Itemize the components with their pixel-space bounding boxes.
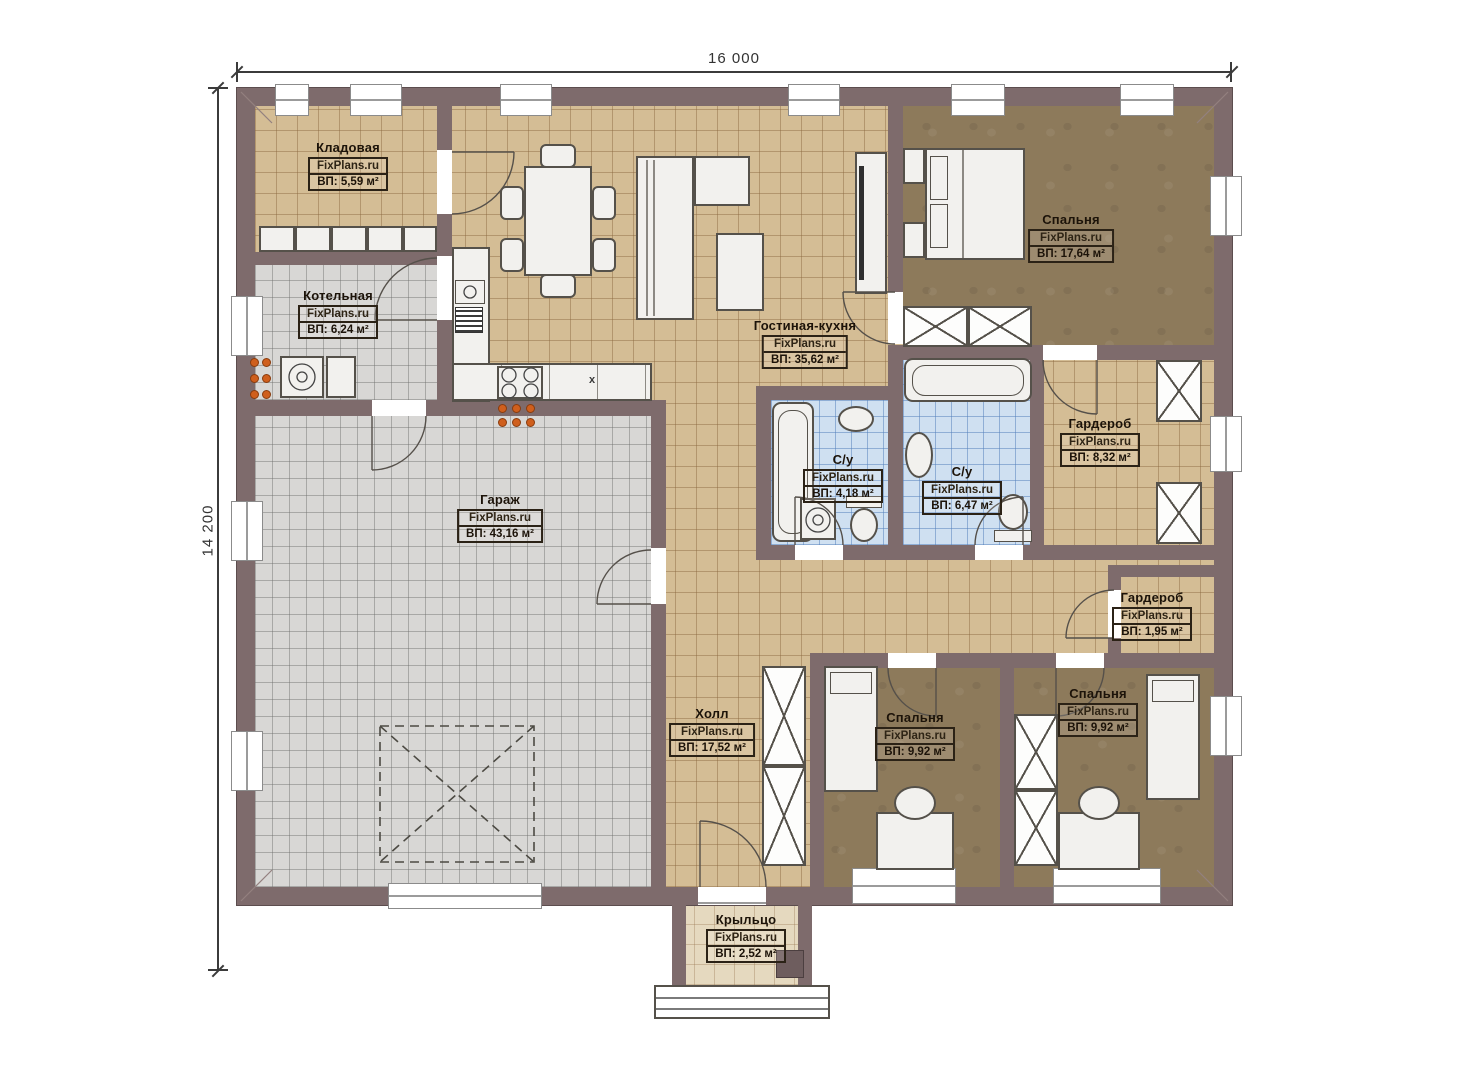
desk <box>876 812 954 870</box>
utility-dot <box>262 390 271 399</box>
window <box>275 84 309 116</box>
utility-dot <box>512 404 521 413</box>
wall <box>437 320 452 400</box>
bathtub-inner <box>912 365 1024 396</box>
room-name: Холл <box>669 706 755 721</box>
sink <box>838 406 874 432</box>
utility-dot <box>512 418 521 427</box>
closet-shelving <box>968 306 1032 347</box>
room-label-bedroom1: Спальня FixPlans.ru ВП: 17,64 м² <box>1028 212 1114 263</box>
storage-shelf <box>403 226 437 252</box>
entry-threshold <box>698 902 766 904</box>
watermark: FixPlans.ru <box>310 159 386 173</box>
window <box>231 731 263 791</box>
room-name: Кладовая <box>308 140 388 155</box>
wall <box>1104 653 1214 668</box>
room-name: Спальня <box>875 710 955 725</box>
dining-chair <box>540 144 576 168</box>
pillow <box>830 672 872 694</box>
room-name: С/у <box>922 464 1002 479</box>
wall <box>437 214 452 256</box>
wall <box>888 359 903 545</box>
room-label-living-kitchen: Гостиная-кухня FixPlans.ru ВП: 35,62 м² <box>754 318 856 369</box>
watermark: FixPlans.ru <box>877 729 953 743</box>
pillow <box>1152 680 1194 702</box>
nightstand <box>903 148 925 184</box>
kitchen-module-sign: x <box>572 365 612 398</box>
utility-dot <box>250 358 259 367</box>
watermark: FixPlans.ru <box>924 483 1000 497</box>
coffee-table <box>716 233 764 311</box>
room-label-hall: Холл FixPlans.ru ВП: 17,52 м² <box>669 706 755 757</box>
room-area: ВП: 5,59 м² <box>310 173 386 189</box>
wardrobe-shelving <box>1014 714 1058 790</box>
watermark: FixPlans.ru <box>300 307 376 321</box>
storage-shelf <box>295 226 331 252</box>
floor-plan: x <box>0 0 1473 1080</box>
wall <box>1108 565 1121 590</box>
sofa-seam <box>653 160 655 316</box>
room-area: ВП: 43,16 м² <box>459 525 541 541</box>
window <box>1120 84 1174 116</box>
kitchen-counter <box>452 363 652 401</box>
wall <box>756 386 771 560</box>
utility-dot <box>498 418 507 427</box>
toilet-bowl <box>998 494 1028 530</box>
window <box>951 84 1005 116</box>
wall <box>936 653 1056 668</box>
room-area: ВП: 6,47 м² <box>924 497 1000 513</box>
kitchen-sink <box>455 280 485 304</box>
room-label-bedroom2: Спальня FixPlans.ru ВП: 9,92 м² <box>875 710 955 761</box>
room-area: ВП: 17,64 м² <box>1030 245 1112 261</box>
window <box>350 84 402 116</box>
wall <box>255 252 437 265</box>
watermark: FixPlans.ru <box>1062 435 1138 449</box>
door-opening <box>795 545 843 560</box>
pillow <box>930 156 948 200</box>
room-name: Котельная <box>298 288 378 303</box>
washing-machine <box>800 498 836 540</box>
washing-machine <box>280 356 324 398</box>
door-opening <box>888 292 903 344</box>
window <box>1210 696 1242 756</box>
hall-wardrobe <box>762 766 806 866</box>
utility-dot <box>262 374 271 383</box>
room-area: ВП: 6,24 м² <box>300 321 376 337</box>
room-label-porch: Крыльцо FixPlans.ru ВП: 2,52 м² <box>706 912 786 963</box>
room-area: ВП: 17,52 м² <box>671 739 753 755</box>
room-label-bath2: С/у FixPlans.ru ВП: 6,47 м² <box>922 464 1002 515</box>
room-name: С/у <box>803 452 883 467</box>
wall <box>1097 345 1214 360</box>
room-label-wardrobe1: Гардероб FixPlans.ru ВП: 8,32 м² <box>1060 416 1140 467</box>
window <box>231 501 263 561</box>
watermark: FixPlans.ru <box>708 931 784 945</box>
room-area: ВП: 2,52 м² <box>708 945 784 961</box>
closet-shelving <box>903 306 968 347</box>
window <box>852 868 956 904</box>
toilet-bowl <box>850 508 878 542</box>
dimension-label-width: 16 000 <box>708 50 760 67</box>
utility-dot <box>498 404 507 413</box>
wall <box>1030 360 1044 545</box>
wall <box>843 545 975 560</box>
room-area: ВП: 35,62 м² <box>764 351 846 367</box>
dimension-line-top <box>237 71 1232 73</box>
sofa <box>636 156 694 320</box>
dining-table <box>524 166 592 276</box>
room-area: ВП: 8,32 м² <box>1062 449 1138 465</box>
desk <box>1058 812 1140 870</box>
wardrobe-shelving <box>1014 790 1058 866</box>
wall <box>651 400 666 548</box>
sofa-seam <box>646 160 648 316</box>
dimension-line-left <box>217 88 219 971</box>
room-label-wardrobe2: Гардероб FixPlans.ru ВП: 1,95 м² <box>1112 590 1192 641</box>
porch-steps <box>654 985 830 1019</box>
sofa-chaise <box>694 156 750 206</box>
wardrobe-shelving <box>1156 482 1202 544</box>
stove <box>497 366 543 399</box>
dish-rack <box>455 307 483 333</box>
boiler-cabinet <box>326 356 356 398</box>
dining-chair <box>500 186 524 220</box>
storage-shelf <box>259 226 295 252</box>
watermark: FixPlans.ru <box>805 471 881 485</box>
wall <box>651 604 666 887</box>
utility-dot <box>250 374 259 383</box>
dining-chair <box>540 274 576 298</box>
room-name: Гардероб <box>1112 590 1192 605</box>
dining-chair <box>592 238 616 272</box>
room-name: Спальня <box>1058 686 1138 701</box>
pillow <box>930 204 948 248</box>
dimension-label-height: 14 200 <box>200 491 217 571</box>
watermark: FixPlans.ru <box>459 511 541 525</box>
room-label-storage: Кладовая FixPlans.ru ВП: 5,59 м² <box>308 140 388 191</box>
watermark: FixPlans.ru <box>1114 609 1190 623</box>
window <box>1053 868 1161 904</box>
room-label-bedroom3: Спальня FixPlans.ru ВП: 9,92 м² <box>1058 686 1138 737</box>
wall <box>1108 565 1214 577</box>
watermark: FixPlans.ru <box>1060 705 1136 719</box>
porch-wall <box>672 905 686 985</box>
door-opening <box>437 150 452 214</box>
room-name: Гостиная-кухня <box>754 318 856 333</box>
watermark: FixPlans.ru <box>764 337 846 351</box>
room-label-bath1: С/у FixPlans.ru ВП: 4,18 м² <box>803 452 883 503</box>
utility-dot <box>262 358 271 367</box>
storage-shelf <box>367 226 403 252</box>
dining-chair <box>500 238 524 272</box>
utility-dot <box>526 404 535 413</box>
storage-shelf <box>331 226 367 252</box>
watermark: FixPlans.ru <box>1030 231 1112 245</box>
wardrobe-shelving <box>1156 360 1202 422</box>
room-area: ВП: 4,18 м² <box>805 485 881 501</box>
tv <box>859 166 864 280</box>
wall <box>888 106 903 292</box>
wall <box>437 106 452 150</box>
wall <box>426 400 665 416</box>
watermark: FixPlans.ru <box>671 725 753 739</box>
utility-dot <box>526 418 535 427</box>
nightstand <box>903 222 925 258</box>
door-opening <box>1043 345 1097 360</box>
wall <box>810 668 824 887</box>
door-opening <box>651 548 666 604</box>
door-opening <box>1056 653 1104 668</box>
hall-wardrobe <box>762 666 806 766</box>
window <box>500 84 552 116</box>
wall <box>1023 545 1214 560</box>
door-opening <box>372 400 426 416</box>
blanket-seam <box>962 150 964 258</box>
outer-wall <box>237 88 1232 905</box>
room-name: Спальня <box>1028 212 1114 227</box>
dining-chair <box>592 186 616 220</box>
window <box>788 84 840 116</box>
door-opening <box>888 653 936 668</box>
room-name: Гараж <box>457 492 543 507</box>
garage-gate <box>388 883 542 909</box>
window <box>231 296 263 356</box>
room-label-garage: Гараж FixPlans.ru ВП: 43,16 м² <box>457 492 543 543</box>
chair <box>894 786 936 820</box>
room-area: ВП: 9,92 м² <box>877 743 953 759</box>
wall <box>255 400 372 416</box>
door-opening <box>437 256 452 320</box>
room-area: ВП: 1,95 м² <box>1114 623 1190 639</box>
wall <box>1000 668 1014 887</box>
room-label-boiler: Котельная FixPlans.ru ВП: 6,24 м² <box>298 288 378 339</box>
room-name: Гардероб <box>1060 416 1140 431</box>
chair <box>1078 786 1120 820</box>
room-area: ВП: 9,92 м² <box>1060 719 1136 735</box>
door-opening <box>975 545 1023 560</box>
wall <box>756 386 902 400</box>
window <box>1210 176 1242 236</box>
room-name: Крыльцо <box>706 912 786 927</box>
window <box>1210 416 1242 472</box>
toilet-tank <box>994 530 1032 542</box>
utility-dot <box>250 390 259 399</box>
